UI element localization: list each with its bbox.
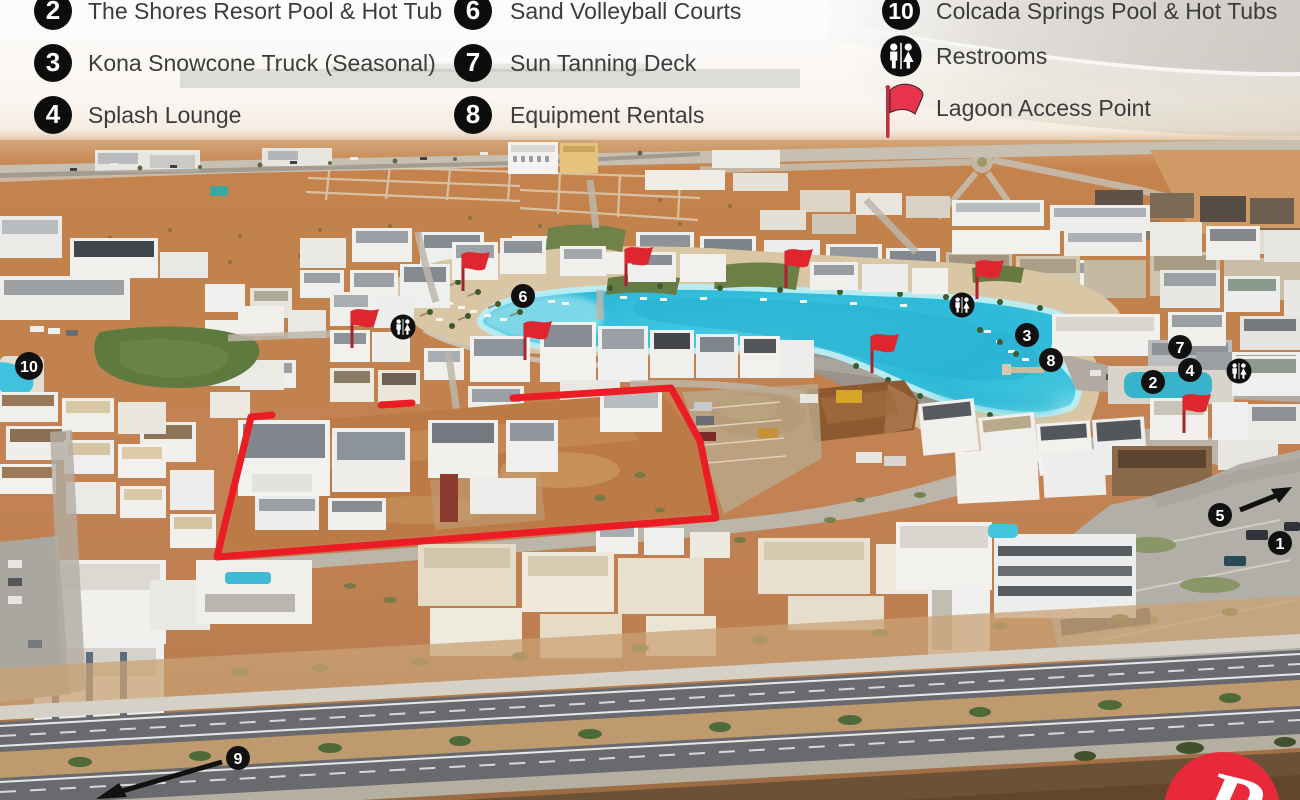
svg-text:6: 6 <box>466 0 480 25</box>
svg-text:2: 2 <box>46 0 60 25</box>
svg-text:8: 8 <box>1047 353 1056 370</box>
svg-text:10: 10 <box>20 359 38 376</box>
svg-text:4: 4 <box>1186 363 1195 380</box>
svg-text:4: 4 <box>46 99 61 129</box>
svg-text:1: 1 <box>1276 536 1285 553</box>
svg-text:7: 7 <box>466 47 480 77</box>
svg-text:Sand Volleyball Courts: Sand Volleyball Courts <box>510 0 741 24</box>
svg-text:Lagoon Access Point: Lagoon Access Point <box>936 95 1151 121</box>
svg-text:2: 2 <box>1149 375 1158 392</box>
svg-text:9: 9 <box>234 751 243 768</box>
svg-text:6: 6 <box>519 289 528 306</box>
svg-text:5: 5 <box>1216 508 1225 525</box>
svg-text:8: 8 <box>466 99 480 129</box>
svg-text:3: 3 <box>46 47 60 77</box>
svg-text:Equipment Rentals: Equipment Rentals <box>510 102 704 128</box>
svg-text:10: 10 <box>888 0 914 24</box>
svg-text:Colcada Springs Pool & Hot Tub: Colcada Springs Pool & Hot Tubs <box>936 0 1277 24</box>
svg-text:Kona Snowcone Truck (Seasonal): Kona Snowcone Truck (Seasonal) <box>88 50 436 76</box>
svg-text:Restrooms: Restrooms <box>936 43 1047 69</box>
svg-text:The Shores Resort Pool & Hot T: The Shores Resort Pool & Hot Tub <box>88 0 442 24</box>
svg-text:Splash Lounge: Splash Lounge <box>88 102 241 128</box>
svg-text:3: 3 <box>1023 328 1032 345</box>
svg-text:7: 7 <box>1176 340 1185 357</box>
svg-text:Sun Tanning Deck: Sun Tanning Deck <box>510 50 697 76</box>
